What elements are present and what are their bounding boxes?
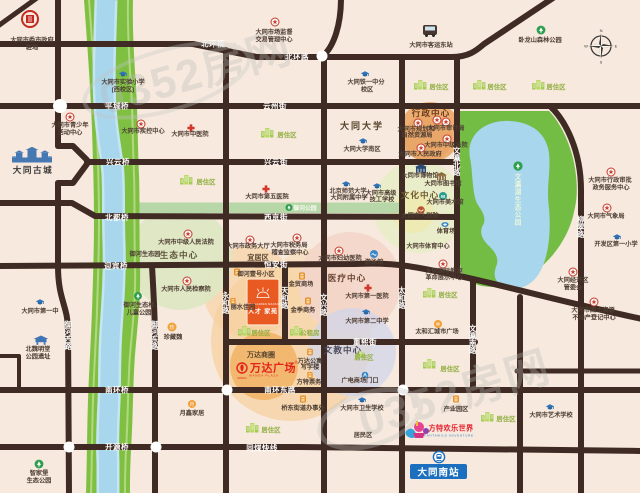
svg-text:生态公园: 生态公园	[27, 477, 52, 485]
svg-text:金贸商场: 金贸商场	[288, 280, 314, 288]
svg-text:医疗中心: 医疗中心	[328, 272, 366, 283]
svg-text:N: N	[600, 28, 603, 33]
svg-text:W: W	[584, 44, 588, 49]
svg-text:太和汇城市广场: 太和汇城市广场	[415, 328, 458, 336]
svg-text:WANDA: WANDA	[237, 376, 247, 380]
svg-text:技工学校: 技工学校	[370, 196, 396, 204]
svg-text:北都桥: 北都桥	[105, 213, 129, 222]
svg-text:居住区: 居住区	[546, 82, 566, 91]
svg-text:稽查监察中心: 稽查监察中心	[271, 249, 309, 257]
svg-text:开发区第一小学: 开发区第一小学	[594, 240, 637, 248]
svg-text:居住区: 居住区	[277, 130, 297, 139]
svg-text:南环桥: 南环桥	[105, 386, 129, 395]
svg-text:丽水佳园: 丽水佳园	[231, 303, 256, 311]
svg-text:万达商圈: 万达商圈	[246, 350, 275, 359]
svg-text:北魏明堂: 北魏明堂	[26, 345, 51, 353]
svg-text:大同市体育中心: 大同市体育中心	[406, 242, 450, 250]
svg-text:自然资源局: 自然资源局	[402, 131, 433, 139]
svg-text:桥东街道办事处: 桥东街道办事处	[281, 404, 325, 412]
svg-text:同煤快线: 同煤快线	[246, 444, 278, 453]
svg-text:大同市气象局: 大同市气象局	[587, 212, 624, 220]
svg-text:大同市中医院: 大同市中医院	[171, 130, 209, 138]
svg-text:兴云桥: 兴云桥	[106, 158, 130, 167]
svg-text:居住区: 居住区	[196, 177, 216, 186]
svg-text:大同市政务大厅: 大同市政务大厅	[226, 242, 270, 250]
svg-text:柳翠路: 柳翠路	[577, 215, 585, 239]
svg-text:珍藏魏: 珍藏魏	[164, 333, 183, 341]
svg-text:(西校区): (西校区)	[112, 86, 135, 94]
svg-text:宜居区: 宜居区	[247, 253, 269, 262]
svg-text:生态中心: 生态中心	[160, 249, 198, 260]
svg-text:大同大学南区: 大同大学南区	[343, 145, 381, 153]
svg-text:居住区: 居住区	[354, 353, 374, 362]
svg-text:居住区: 居住区	[261, 425, 281, 434]
svg-text:大同市中级人民法院: 大同市中级人民法院	[158, 238, 214, 246]
svg-text:居住区: 居住区	[487, 82, 507, 91]
svg-text:西京街: 西京街	[264, 213, 288, 222]
svg-text:大同市青少年: 大同市青少年	[51, 121, 89, 129]
svg-text:大同古城: 大同古城	[13, 164, 53, 175]
svg-text:大同南站: 大同南站	[417, 467, 459, 479]
svg-text:大同市疾控中心: 大同市疾控中心	[121, 127, 165, 135]
svg-text:万达广场: 万达广场	[249, 361, 296, 375]
svg-text:文兴路: 文兴路	[320, 293, 328, 317]
svg-text:天和路: 天和路	[280, 286, 289, 310]
svg-text:大同市中级法院: 大同市中级法院	[424, 141, 468, 149]
svg-text:大同市卫生学校: 大同市卫生学校	[340, 404, 384, 412]
svg-text:大同市审计局: 大同市审计局	[427, 124, 464, 132]
svg-text:公园遗址: 公园遗址	[26, 353, 52, 361]
svg-text:大同市场监督: 大同市场监督	[255, 28, 293, 36]
svg-text:大同市国土资源: 大同市国土资源	[571, 306, 615, 314]
svg-text:居民区: 居民区	[354, 431, 373, 439]
svg-text:大同市艺术学校: 大同市艺术学校	[529, 411, 573, 419]
svg-text:大同市博物馆: 大同市博物馆	[401, 172, 438, 180]
svg-text:开源桥: 开源桥	[105, 443, 129, 452]
svg-text:体育场: 体育场	[437, 227, 456, 235]
svg-text:E: E	[615, 44, 618, 49]
svg-text:文瀛北路: 文瀛北路	[453, 146, 461, 177]
svg-text:写字楼: 写字楼	[301, 363, 320, 371]
svg-text:御河壹号小区: 御河壹号小区	[236, 270, 275, 278]
svg-text:大同市委市政府: 大同市委市政府	[10, 36, 54, 44]
svg-text:不动产登记中心: 不动产登记中心	[572, 314, 616, 322]
svg-text:WANDA PLAZA: WANDA PLAZA	[249, 374, 279, 378]
svg-text:儿童公园: 儿童公园	[126, 309, 152, 317]
svg-text:大同市人民检察院: 大同市人民检察院	[161, 285, 211, 293]
svg-text:革命展示中心: 革命展示中心	[425, 274, 463, 282]
svg-text:广电商场门口: 广电商场门口	[341, 377, 378, 385]
svg-text:政务服务中心: 政务服务中心	[592, 184, 630, 192]
svg-text:大同铁一中分: 大同铁一中分	[347, 78, 385, 86]
svg-text:方特欢乐世界: 方特欢乐世界	[429, 424, 474, 433]
svg-text:居住区: 居住区	[438, 290, 458, 299]
svg-text:居住区: 居住区	[496, 414, 516, 423]
svg-text:游泳馆: 游泳馆	[365, 258, 384, 266]
svg-text:产业园区: 产业园区	[444, 405, 470, 413]
svg-text:大同市第五医院: 大同市第五医院	[245, 193, 289, 201]
svg-text:御河生态林: 御河生态林	[123, 301, 156, 309]
svg-text:驻地: 驻地	[26, 44, 39, 52]
svg-text:珍: 珍	[169, 324, 174, 331]
svg-text:大同市人民政府: 大同市人民政府	[398, 150, 442, 158]
svg-text:文瀛湖生态公园: 文瀛湖生态公园	[515, 172, 522, 227]
svg-text:大同市实验小学: 大同市实验小学	[101, 78, 144, 86]
svg-text:大同市大剧院: 大同市大剧院	[401, 212, 439, 220]
svg-text:FANTAWILD ADVENTURE: FANTAWILD ADVENTURE	[424, 434, 473, 438]
svg-text:大同市税务局: 大同市税务局	[270, 241, 307, 249]
svg-text:月鑫家居: 月鑫家居	[179, 409, 205, 417]
svg-text:居住区: 居住区	[251, 328, 271, 337]
svg-text:大同市第一中: 大同市第一中	[21, 307, 58, 315]
svg-text:居住区: 居住区	[440, 364, 460, 373]
svg-text:行政中心: 行政中心	[411, 107, 450, 118]
svg-text:金季商务: 金季商务	[290, 306, 317, 314]
svg-text:居住区: 居住区	[429, 82, 449, 91]
svg-text:卧龙山森林公园: 卧龙山森林公园	[518, 36, 561, 44]
svg-text:大同附属中学: 大同附属中学	[330, 194, 367, 202]
svg-text:御河东路: 御河东路	[150, 320, 159, 351]
svg-text:御河公园: 御河公园	[292, 204, 316, 212]
svg-text:南环东路: 南环东路	[264, 386, 296, 395]
svg-text:大同市第一医院: 大同市第一医院	[345, 292, 389, 300]
svg-text:管委会: 管委会	[564, 284, 583, 292]
svg-text:方特票务: 方特票务	[297, 378, 323, 386]
svg-text:文化中心: 文化中心	[400, 189, 439, 200]
svg-text:大同经开区: 大同经开区	[558, 276, 590, 284]
svg-text:御河生态园: 御河生态园	[129, 250, 161, 258]
svg-text:迎宾桥: 迎宾桥	[104, 262, 128, 271]
svg-text:公租房: 公租房	[300, 328, 320, 337]
svg-text:校区: 校区	[361, 86, 374, 94]
svg-text:大同市第二中学: 大同市第二中学	[345, 317, 388, 325]
svg-text:永和路: 永和路	[221, 291, 230, 315]
svg-text:交易管理中心: 交易管理中心	[255, 36, 293, 44]
svg-text:御河西路: 御河西路	[64, 320, 73, 351]
svg-text:活动中心: 活动中心	[58, 129, 84, 137]
svg-text:大同市图书馆: 大同市图书馆	[424, 180, 461, 188]
svg-text:S: S	[600, 59, 603, 64]
svg-text:大同市客运东站: 大同市客运东站	[409, 41, 453, 49]
svg-text:兴云街: 兴云街	[264, 158, 288, 167]
svg-text:太和路: 太和路	[397, 286, 406, 310]
svg-text:云州街: 云州街	[263, 102, 287, 111]
svg-text:大同大学: 大同大学	[340, 120, 384, 131]
svg-text:大同市妇幼医院: 大同市妇幼医院	[318, 254, 362, 262]
svg-text:文瀛南路: 文瀛南路	[469, 324, 477, 355]
svg-text:大同市行政审批: 大同市行政审批	[588, 176, 632, 184]
svg-text:智家堡: 智家堡	[29, 469, 49, 477]
